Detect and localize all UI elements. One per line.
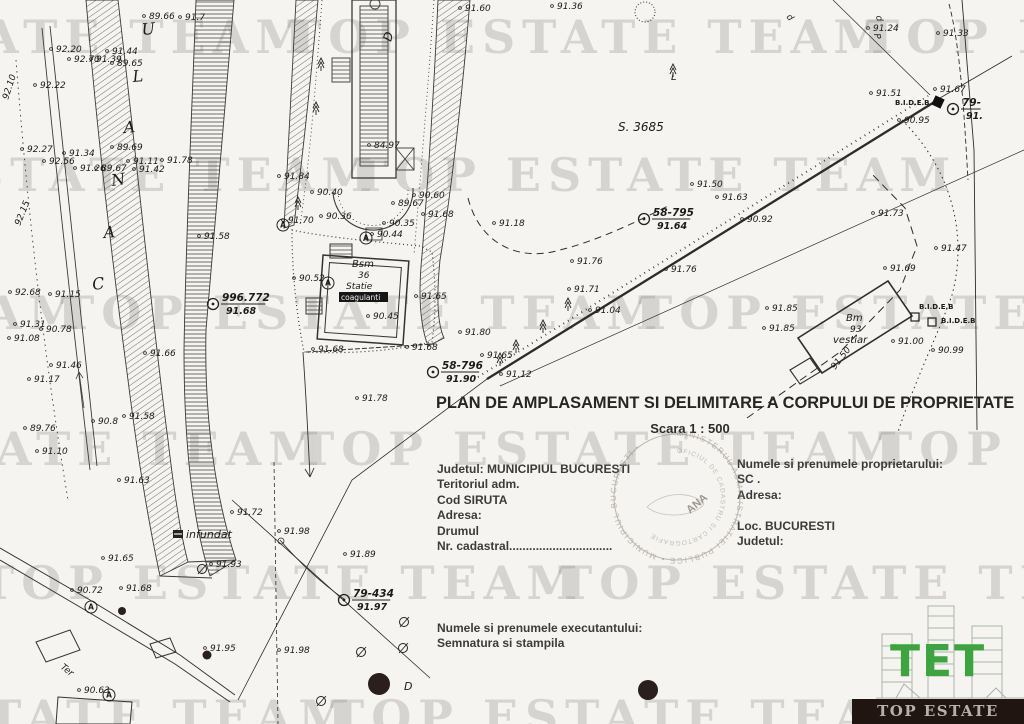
elevation-label: 92.56 — [49, 157, 75, 167]
feature-label: B.I.D.E.B — [895, 99, 930, 107]
elevation-label: 91.78 — [167, 156, 193, 166]
elevation-label: 91.78 — [362, 394, 388, 404]
elevation-label: 91.68 — [318, 345, 344, 355]
point-marker — [8, 337, 11, 340]
elevation-label: 90.45 — [373, 312, 399, 322]
point-marker — [78, 689, 81, 692]
elevation-label: 89.69 — [117, 143, 143, 153]
filled-dot — [118, 607, 126, 615]
elevation-label: 90.78 — [46, 325, 72, 335]
feature-label: B.I.D.E.B — [941, 317, 976, 325]
logo-banner: TOP ESTATE TEAM — [852, 699, 1024, 724]
elevation-label: 90.52 — [299, 274, 325, 284]
logo-initials: TET — [890, 636, 986, 687]
elevation-label: 91.71 — [574, 285, 600, 295]
benchmark-elevation: 91. — [966, 111, 983, 122]
benchmark-elevation: 91.90 — [446, 374, 476, 385]
elevation-label: 91.12 — [506, 370, 532, 380]
stamp-inner-text: OFICIUL DE CADASTRU SI CARTOGRAFIE — [649, 448, 726, 546]
point-marker — [231, 511, 234, 514]
feature-label: L — [131, 66, 144, 86]
elevation-label: 84.97 — [374, 141, 400, 151]
elevation-label: 90.35 — [389, 219, 415, 229]
benchmark-elevation: 91.97 — [357, 602, 387, 613]
point-marker — [422, 213, 425, 216]
filled-dot — [203, 651, 212, 660]
benchmark-label: 79-434 — [353, 588, 394, 600]
elevation-label: 91.98 — [284, 646, 310, 656]
benchmark-elevation: 91.64 — [657, 221, 687, 232]
elevation-label: 91.65 — [421, 292, 447, 302]
point-marker — [50, 364, 53, 367]
point-marker — [9, 291, 12, 294]
elevation-label: 91.04 — [595, 306, 621, 316]
point-marker — [568, 288, 571, 291]
point-marker — [278, 530, 281, 533]
elevation-label: 91.33 — [943, 29, 969, 39]
elevation-label: 91.46 — [56, 361, 82, 371]
point-marker — [551, 5, 554, 8]
filled-dot — [638, 680, 658, 700]
point-marker — [278, 649, 281, 652]
feature-label: Ter — [58, 662, 76, 679]
point-marker — [118, 479, 121, 482]
feature-label: A — [101, 222, 116, 242]
point-marker — [123, 415, 126, 418]
point-marker — [204, 647, 207, 650]
point-marker — [50, 48, 53, 51]
elevation-label: 91.10 — [42, 447, 68, 457]
elevation-label: 90.92 — [747, 215, 773, 225]
point-marker — [43, 160, 46, 163]
elevation-label: 91.73 — [878, 209, 904, 219]
elevation-label: 91.65 — [108, 554, 134, 564]
elevation-label: 91.08 — [14, 334, 40, 344]
point-marker — [311, 191, 314, 194]
svg-text:OFICIUL DE CADASTRU SI CARTOGR: OFICIUL DE CADASTRU SI CARTOGRAFIE — [649, 448, 726, 546]
elevation-label: 91.63 — [124, 476, 150, 486]
benchmark-label: 79- — [962, 97, 981, 109]
point-marker — [898, 119, 901, 122]
feature-label: coagulanti — [341, 293, 380, 302]
road-ter — [0, 548, 235, 724]
point-marker — [278, 175, 281, 178]
point-marker — [500, 373, 503, 376]
point-marker — [312, 348, 315, 351]
scanned-cadastral-plan: TOP ESTATE TEAMTOP ESTATE TEAMTOP ESTATE… — [0, 0, 1024, 724]
feature-label: C — [91, 273, 106, 294]
elevation-label: 91.67 — [940, 85, 966, 95]
point-marker — [161, 159, 164, 162]
elevation-label: 90.99 — [938, 346, 964, 356]
point-marker — [28, 378, 31, 381]
plan-title: PLAN DE AMPLASAMENT SI DELIMITARE A CORP… — [436, 396, 1014, 411]
feature-label: S. 3685 — [618, 120, 664, 134]
point-marker — [481, 354, 484, 357]
point-marker — [589, 309, 592, 312]
infundat-symbol — [173, 530, 183, 538]
feature-label: vestiar — [833, 335, 868, 346]
elevation-label: 91.7 — [185, 13, 205, 23]
elevation-label: 91.85 — [769, 324, 795, 334]
elevation-label: 91.68 — [412, 343, 438, 353]
elevation-label: 91.42 — [139, 165, 165, 175]
point-marker — [935, 247, 938, 250]
bideb-square — [911, 313, 919, 321]
elevation-label: 92.68 — [15, 288, 41, 298]
elevation-label: 91.70 — [288, 216, 314, 226]
point-marker — [766, 307, 769, 310]
point-marker — [143, 15, 146, 18]
post-square — [931, 95, 944, 108]
elevation-label: 91.63 — [722, 193, 748, 203]
elevation-label: 91.58 — [129, 412, 155, 422]
elevation-label: 91.84 — [284, 172, 310, 182]
elevation-label: 91.51 — [876, 89, 902, 99]
elevation-label: 91.60 — [465, 4, 491, 14]
elevation-label: 89.76 — [30, 424, 56, 434]
elevation-label: 90.8 — [98, 417, 118, 427]
point-marker — [763, 327, 766, 330]
elevation-label: 91.68 — [126, 584, 152, 594]
point-marker — [49, 293, 52, 296]
elevation-label: 91.36 — [557, 2, 583, 12]
form-field: Semnatura si stampila — [437, 636, 642, 651]
feature-label: U — [141, 19, 157, 39]
benchmark-elevation: 91.68 — [226, 306, 256, 317]
bideb-square — [928, 318, 936, 326]
elevation-label: 91.76 — [671, 265, 697, 275]
elevation-label: 91.85 — [772, 304, 798, 314]
control-point-letter: A — [88, 603, 94, 612]
elevation-label: 91.95 — [210, 644, 236, 654]
point-marker — [493, 222, 496, 225]
point-marker — [884, 267, 887, 270]
point-marker — [716, 196, 719, 199]
point-marker — [870, 92, 873, 95]
point-marker — [179, 16, 182, 19]
form-field: Numele si prenumele executantului: — [437, 621, 642, 636]
benchmark-label: 58-796 — [442, 360, 483, 372]
benchmark-label: 996.772 — [222, 292, 270, 304]
control-point-letter: A — [280, 221, 286, 230]
elevation-label: 91.44 — [112, 47, 138, 57]
elevation-label: 92.22 — [40, 81, 66, 91]
feature-label: 93 — [850, 325, 862, 335]
elevation-label: 91.47 — [941, 244, 967, 254]
feature-label: Statie — [346, 282, 373, 292]
elevation-label: 91.98 — [284, 527, 310, 537]
logo-buildings-icon: TET — [876, 604, 1024, 702]
elevation-label: 90.95 — [904, 116, 930, 126]
elevation-label: 92.27 — [27, 145, 53, 155]
benchmark-dot — [643, 218, 646, 221]
point-marker — [120, 587, 123, 590]
elevation-label: 91.76 — [577, 257, 603, 267]
point-marker — [937, 32, 940, 35]
benchmark-dot — [212, 303, 215, 306]
point-marker — [571, 260, 574, 263]
elevation-label: 91.58 — [204, 232, 230, 242]
point-marker — [36, 450, 39, 453]
point-marker — [934, 88, 937, 91]
executor-field-list: Numele si prenumele executantului:Semnat… — [437, 621, 642, 652]
elevation-label: 91.17 — [34, 375, 60, 385]
elevation-label: 91.00 — [898, 337, 924, 347]
point-marker — [932, 349, 935, 352]
filled-dot — [368, 673, 390, 695]
point-marker — [392, 202, 395, 205]
point-marker — [892, 340, 895, 343]
elevation-label: 91.50 — [829, 345, 853, 372]
point-marker — [344, 553, 347, 556]
point-marker — [356, 397, 359, 400]
elevation-label: 91.15 — [55, 290, 81, 300]
elevation-label: 90.36 — [326, 212, 352, 222]
feature-label: d — [873, 15, 884, 23]
benchmark-label: 58-795 — [653, 207, 694, 219]
point-marker — [415, 295, 418, 298]
point-marker — [34, 84, 37, 87]
elevation-label: 92.15 — [14, 199, 33, 227]
point-marker — [459, 331, 462, 334]
elevation-label: 91.50 — [697, 180, 723, 190]
feature-label: d — [784, 13, 796, 24]
elevation-label: 90.72 — [77, 586, 103, 596]
feature-label: B.I.D.E.B — [919, 303, 954, 311]
elevation-label: 90.40 — [317, 188, 343, 198]
elevation-label: 91.89 — [350, 550, 376, 560]
point-marker — [24, 427, 27, 430]
point-marker — [21, 148, 24, 151]
conifer-tree-icon — [318, 58, 324, 71]
elevation-label: 92.10 — [1, 73, 19, 101]
feature-label: P — [871, 33, 882, 41]
elevation-label: 91.80 — [465, 328, 491, 338]
point-marker — [872, 212, 875, 215]
elevation-label: 91.68 — [428, 210, 454, 220]
control-point-letter: A — [106, 691, 112, 700]
point-marker — [867, 27, 870, 30]
conifer-tree-icon — [540, 320, 546, 333]
conifer-tree-icon — [565, 298, 571, 311]
feature-label: Bm — [846, 313, 863, 324]
point-marker — [102, 557, 105, 560]
point-marker — [320, 215, 323, 218]
elevation-label: 91.93 — [216, 560, 242, 570]
point-marker — [74, 167, 77, 170]
point-marker — [691, 183, 694, 186]
point-marker — [68, 58, 71, 61]
elevation-label: 90.44 — [377, 230, 403, 240]
elevation-label: 89.67 — [398, 199, 424, 209]
benchmark-dot — [343, 599, 346, 602]
feature-label: 36 — [358, 271, 370, 281]
control-point-letter: A — [325, 279, 331, 288]
benchmark-dot — [952, 108, 955, 111]
elevation-label: 91.69 — [890, 264, 916, 274]
control-point-letter: A — [363, 234, 369, 243]
point-marker — [14, 323, 17, 326]
elevation-label: 91.72 — [237, 508, 263, 518]
survey-map: 92.2092.7091.3991.4489.6589.6691.792.229… — [0, 0, 1024, 724]
point-marker — [367, 315, 370, 318]
elevation-label: 92.20 — [56, 45, 82, 55]
official-stamp: MINISTERUL ADMINISTRATIEI PUBLICE • MUNI… — [592, 412, 772, 582]
elevation-label: 91.66 — [150, 349, 176, 359]
feature-label: D — [404, 680, 412, 693]
benchmark-dot — [432, 371, 435, 374]
elevation-label: 91.18 — [499, 219, 525, 229]
feature-label: Bsm — [352, 259, 374, 270]
feature-label: infundat — [186, 528, 233, 541]
